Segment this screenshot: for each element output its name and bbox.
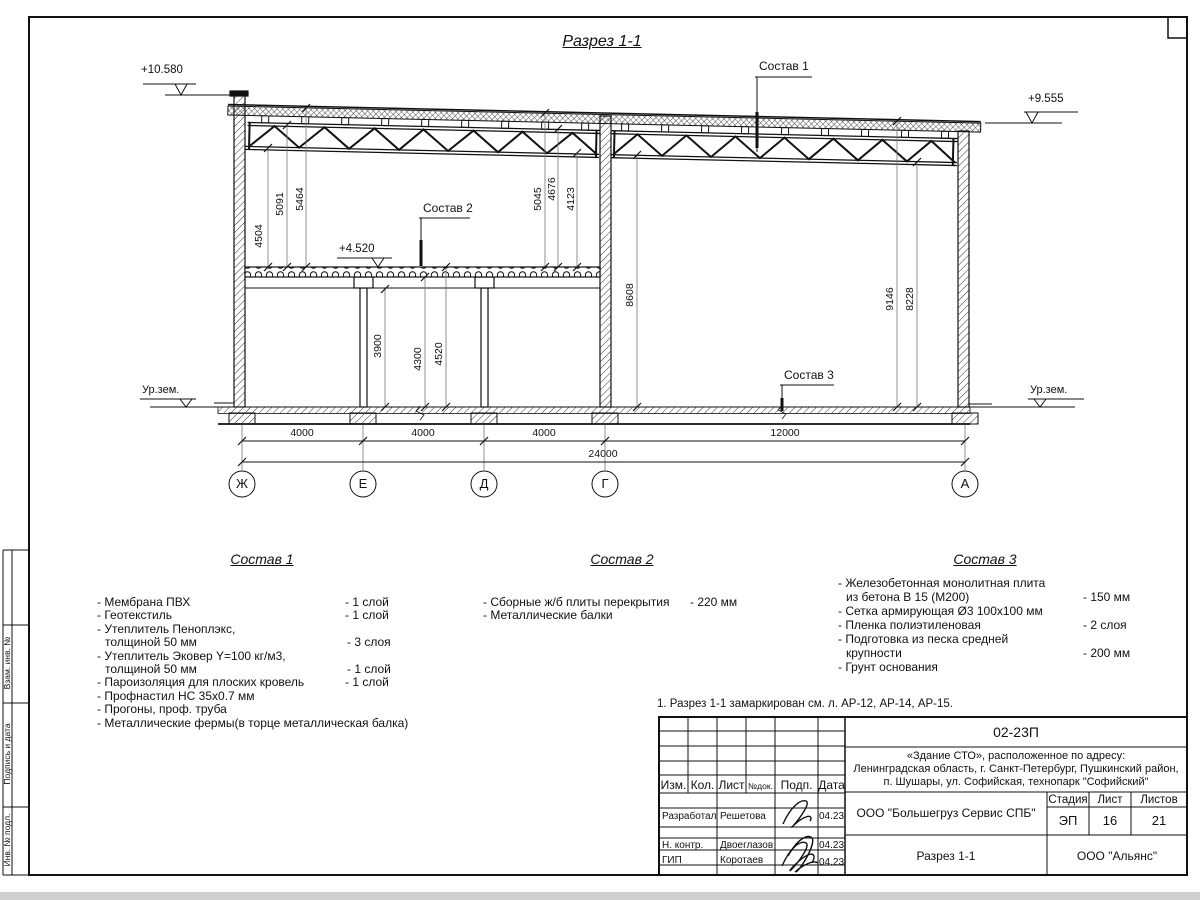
callout-sostav-1: Состав 1	[759, 59, 809, 73]
axis-bubble-d: Д	[471, 476, 497, 491]
name-gip: Коротаев	[720, 855, 775, 866]
stage-value: ЭП	[1047, 813, 1089, 828]
dim-4520: 4520	[433, 332, 445, 376]
list-item: - Металлические балки	[483, 609, 773, 622]
sheet-value: 16	[1089, 813, 1131, 828]
column-header-data: Дата	[818, 778, 845, 792]
sheet-label: Лист	[1089, 794, 1131, 806]
column-header-podp: Подп.	[775, 778, 818, 792]
role-ncontrol: Н. контр.	[662, 840, 717, 851]
dim-3900: 3900	[372, 324, 384, 368]
drawing-title: Разрез 1-1	[512, 33, 692, 51]
stage-label: Стадия	[1047, 794, 1089, 806]
list-item: толщиной 50 мм- 3 слоя	[97, 636, 437, 649]
dim-5045: 5045	[532, 177, 544, 221]
list-item: - Сборные ж/б плиты перекрытия- 220 мм	[483, 596, 773, 609]
date-gip: 04.23	[818, 857, 845, 868]
composition-3-list: - Железобетонная монолитная плита из бет…	[838, 576, 1138, 674]
callout-sostav-2: Состав 2	[423, 201, 473, 215]
list-item: толщиной 50 мм- 1 слой	[97, 663, 437, 676]
list-item: - Утеплитель Эковер Y=100 кг/м3,	[97, 650, 437, 663]
dim-4504: 4504	[253, 214, 265, 258]
list-item: - Грунт основания	[838, 660, 1138, 674]
column-header-kol: Кол.	[688, 778, 717, 792]
company-name: ООО "Альянс"	[1047, 849, 1187, 863]
composition-3-heading: Состав 3	[925, 551, 1045, 567]
dim-8608: 8608	[624, 273, 636, 317]
date-developer: 04.23	[818, 811, 845, 822]
elevation-top-right: +9.555	[1028, 93, 1064, 105]
dim-4123: 4123	[565, 177, 577, 221]
margin-label-vzam: Взам. инв. №	[2, 624, 12, 702]
list-item: - Железобетонная монолитная плита	[838, 576, 1138, 590]
axis-bubble-a: А	[952, 476, 978, 491]
drawing-name-cell: Разрез 1-1	[845, 849, 1047, 863]
list-item: - Мембрана ПВХ- 1 слой	[97, 596, 437, 609]
object-address-line3: п. Шушары, ул. Софийская, технопарк "Соф…	[845, 776, 1187, 788]
column-header-izm: Изм.	[659, 778, 688, 792]
sheets-value: 21	[1131, 813, 1187, 828]
callout-sostav-3: Состав 3	[784, 368, 834, 382]
dim-4300: 4300	[412, 337, 424, 381]
dim-24000: 24000	[573, 448, 633, 460]
composition-2-heading: Состав 2	[562, 551, 682, 567]
column-header-list: Лист	[717, 778, 746, 792]
composition-2-list: - Сборные ж/б плиты перекрытия- 220 мм -…	[483, 596, 773, 623]
list-item: - Прогоны, проф. труба	[97, 703, 437, 716]
drawing-sheet: Разрез 1-1 +10.580 +9.555 +4.520 Ур.зем.…	[0, 0, 1200, 900]
elevation-top-left: +10.580	[141, 64, 183, 76]
axis-bubble-e: Е	[350, 476, 376, 491]
date-ncontrol: 04.23	[818, 840, 845, 851]
list-item: - Подготовка из песка средней	[838, 632, 1138, 646]
margin-label-podpis: Подпись и дата	[2, 702, 12, 806]
list-item: - Сетка армирующая Ø3 100х100 мм	[838, 604, 1138, 618]
name-developer: Решетова	[720, 811, 775, 822]
column-header-ndok: №док.	[746, 781, 775, 791]
dim-4000-3: 4000	[514, 427, 574, 439]
dim-5464: 5464	[294, 177, 306, 221]
dim-9146: 9146	[884, 277, 896, 321]
list-item: крупности- 200 мм	[838, 646, 1138, 660]
name-ncontrol: Двоеглазов	[720, 840, 778, 851]
contractor-name: ООО "Большегруз Сервис СПБ"	[845, 806, 1047, 820]
dim-5091: 5091	[274, 182, 286, 226]
list-item: - Пароизоляция для плоских кровель- 1 сл…	[97, 676, 437, 689]
ground-level-label-right: Ур.зем.	[1030, 384, 1067, 396]
list-item: - Профнастил НС 35х0.7 мм	[97, 690, 437, 703]
list-item: - Геотекстиль- 1 слой	[97, 609, 437, 622]
dim-4000-1: 4000	[272, 427, 332, 439]
list-item: из бетона В 15 (М200)- 150 мм	[838, 590, 1138, 604]
list-item: - Пленка полиэтиленовая- 2 слоя	[838, 618, 1138, 632]
role-developer: Разработал	[662, 811, 717, 822]
composition-1-heading: Состав 1	[202, 551, 322, 567]
elevation-mezzanine: +4.520	[339, 243, 375, 255]
role-gip: ГИП	[662, 855, 717, 866]
margin-label-inv: Инв. № подл.	[2, 806, 12, 874]
list-item: - Металлические фермы(в торце металличес…	[97, 717, 437, 730]
sheets-label: Листов	[1131, 794, 1187, 806]
dim-12000: 12000	[755, 427, 815, 439]
object-address-line1: «Здание СТО», расположенное по адресу:	[845, 750, 1187, 762]
object-address-line2: Ленинградская область, г. Санкт-Петербур…	[845, 763, 1187, 775]
page-edge	[0, 892, 1200, 900]
document-number: 02-23П	[845, 724, 1187, 740]
dim-4676: 4676	[546, 167, 558, 211]
list-item: - Утеплитель Пеноплэкс,	[97, 623, 437, 636]
dim-8228: 8228	[904, 277, 916, 321]
axis-bubble-zh: Ж	[229, 476, 255, 491]
sheet-note: 1. Разрез 1-1 замаркирован см. л. АР-12,…	[657, 698, 953, 710]
axis-bubble-g: Г	[592, 476, 618, 491]
composition-1-list: - Мембрана ПВХ- 1 слой - Геотекстиль- 1 …	[97, 596, 437, 730]
dim-4000-2: 4000	[393, 427, 453, 439]
ground-level-label-left: Ур.зем.	[142, 384, 179, 396]
